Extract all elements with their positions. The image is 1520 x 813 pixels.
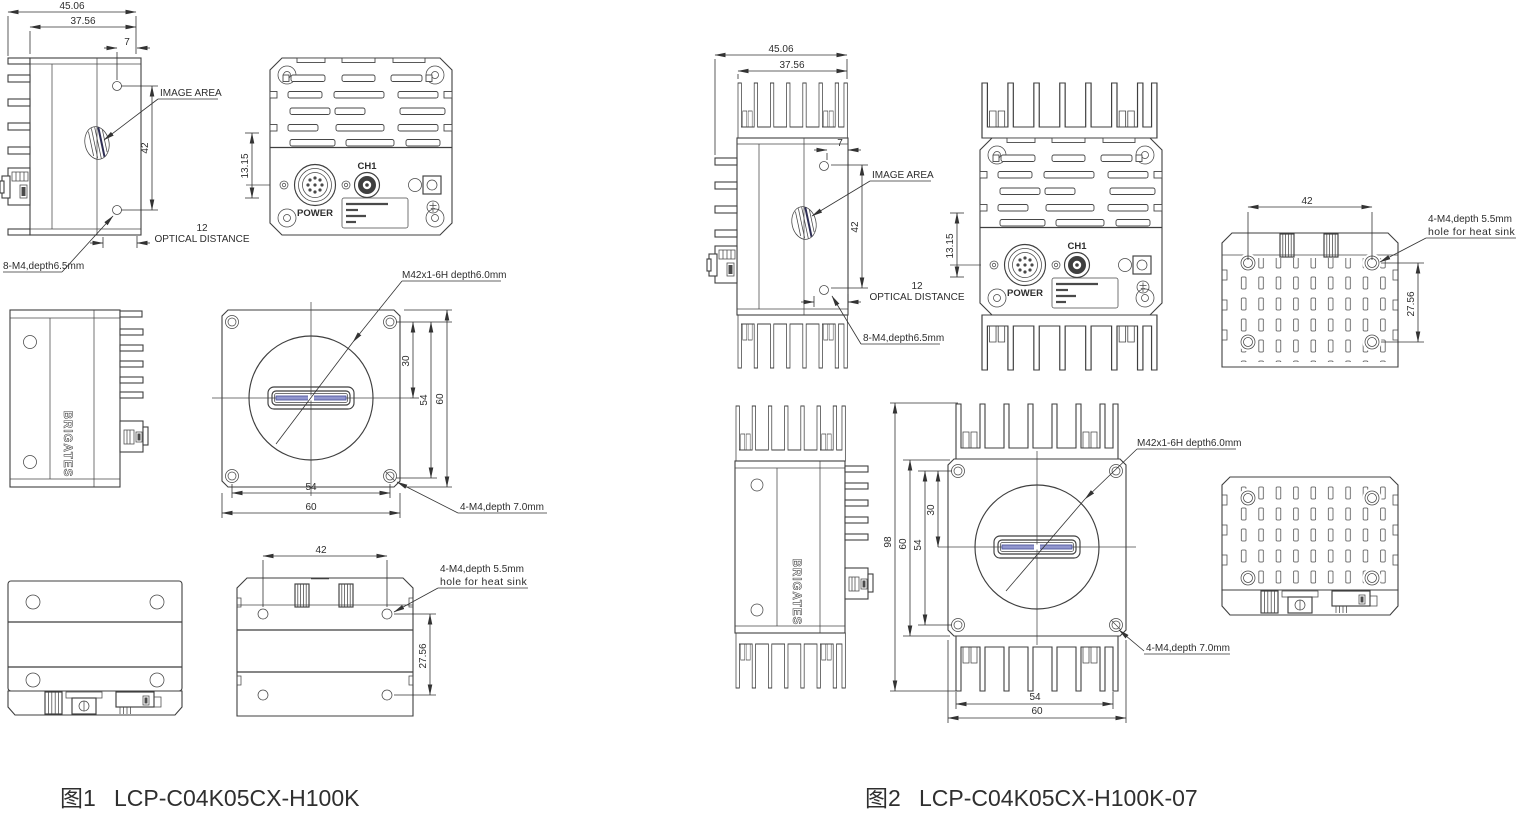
note-side-screws: 8-M4,depth6.5mm [832, 296, 944, 344]
note-text: IMAGE AREA [160, 88, 222, 99]
fig1-top-view: 42 27.56 4-M4,depth 5.5mm hole for heat … [237, 545, 528, 716]
fig2-front-view: M42x1-6H depth6.0mm 4-M4,depth 7.0mm 98 … [883, 403, 1242, 723]
fig1-side-view-2: BRIGATES [10, 310, 148, 487]
dim-text: 54 [419, 394, 430, 406]
brand-logo: BRIGATES [61, 411, 73, 478]
note-text: hole for heat sink [1428, 226, 1516, 238]
dim-text: 54 [1029, 692, 1041, 703]
camera-dimension-drawing: CH1 POWER [0, 0, 1520, 813]
dim-text: 60 [435, 393, 446, 405]
dim-front-right: 30 54 60 [396, 310, 452, 487]
figure2: 45.06 37.56 7 IMAGE AREA 42 [707, 44, 1516, 811]
dim-body-width: 37.56 [738, 60, 847, 79]
dim-label: OPTICAL DISTANCE [869, 292, 964, 303]
note-text: 4-M4,depth 7.0mm [1146, 643, 1230, 654]
dim-text: 60 [1031, 706, 1043, 717]
fig2-heatsink-top-view: 42 4-M4,depth 5.5mm hole for heat sink 2… [1222, 196, 1516, 367]
note-text: 8-M4,depth6.5mm [3, 261, 84, 272]
dim-text: 12 [196, 223, 208, 234]
fig1-rear-view [270, 58, 452, 235]
dim-connector-height: 13.15 [945, 213, 981, 277]
dim-text: 42 [1301, 196, 1313, 207]
brand-logo: BRIGATES [790, 559, 802, 626]
dim-text: 42 [315, 545, 327, 556]
fig2-heatsink-bottom-view [1222, 477, 1398, 615]
fig1-caption: 图1 LCP-C04K05CX-H100K [60, 785, 360, 811]
fig2-side-view-2: BRIGATES [735, 406, 873, 688]
note-text: hole for heat sink [440, 576, 528, 588]
dim-text: 37.56 [779, 60, 804, 71]
dim-text: 27.56 [418, 643, 429, 668]
note-lens-mount: M42x1-6H depth6.0mm [1137, 438, 1242, 449]
figure-label: 图1 [60, 785, 96, 811]
dim-text: 37.56 [70, 16, 95, 27]
fig1-bottom-view [8, 581, 182, 715]
dim-text: 54 [305, 482, 317, 493]
fig1-side-view: 45.06 37.56 7 42 13.15 [0, 1, 271, 272]
dim-body-width: 37.56 [30, 16, 136, 54]
dim-text: 42 [850, 221, 861, 233]
figure-model: LCP-C04K05CX-H100K-07 [919, 785, 1198, 811]
dim-text: 13.15 [945, 233, 956, 258]
dim-text: 12 [911, 281, 923, 292]
dim-connector-height: 13.15 [240, 133, 271, 198]
dim-text: 42 [140, 142, 151, 154]
note-text: M42x1-6H depth6.0mm [1137, 438, 1242, 449]
fig2-rear-view: 13.15 [945, 83, 1162, 370]
figure-model: LCP-C04K05CX-H100K [114, 785, 360, 811]
dim-text: 98 [883, 536, 894, 548]
dim-text: 30 [401, 355, 412, 367]
dim-text: 60 [305, 502, 317, 513]
dim-text: 54 [913, 539, 924, 551]
technical-drawing-page: CH1 POWER [0, 0, 1520, 813]
note-text: M42x1-6H depth6.0mm [402, 270, 507, 281]
dim-text: 60 [898, 538, 909, 550]
note-heatsink-screws: 4-M4,depth 5.5mm hole for heat sink [1380, 214, 1516, 262]
dim-text: 7 [124, 37, 130, 48]
dim-text: 45.06 [768, 44, 793, 55]
dim-front-bottom: 54 60 [948, 640, 1126, 723]
dim-text: 45.06 [59, 1, 84, 12]
note-text: 4-M4,depth 5.5mm [1428, 214, 1512, 225]
dim-text: 30 [926, 504, 937, 516]
fig1-front-view: M42x1-6H depth6.0mm 4-M4,depth 7.0mm 30 … [212, 270, 547, 518]
fig2-caption: 图2 LCP-C04K05CX-H100K-07 [865, 785, 1198, 811]
note-text: 4-M4,depth 7.0mm [460, 502, 544, 513]
dim-text: 27.56 [1406, 291, 1417, 316]
note-front-screws: 4-M4,depth 7.0mm [1119, 630, 1230, 654]
note-text: 8-M4,depth6.5mm [863, 333, 944, 344]
figure1: 45.06 37.56 7 42 13.15 [0, 1, 547, 811]
dim-text: 13.15 [240, 153, 251, 178]
dim-label: OPTICAL DISTANCE [154, 234, 249, 245]
note-heatsink-screws: 4-M4,depth 5.5mm hole for heat sink [394, 564, 528, 612]
note-lens-mount: M42x1-6H depth6.0mm [402, 270, 507, 281]
note-text: 4-M4,depth 5.5mm [440, 564, 524, 575]
figure-label: 图2 [865, 785, 901, 811]
dim-text: 7 [837, 138, 843, 149]
fig2-side-view: 45.06 37.56 7 IMAGE AREA 42 [707, 44, 965, 368]
note-text: IMAGE AREA [872, 170, 934, 181]
